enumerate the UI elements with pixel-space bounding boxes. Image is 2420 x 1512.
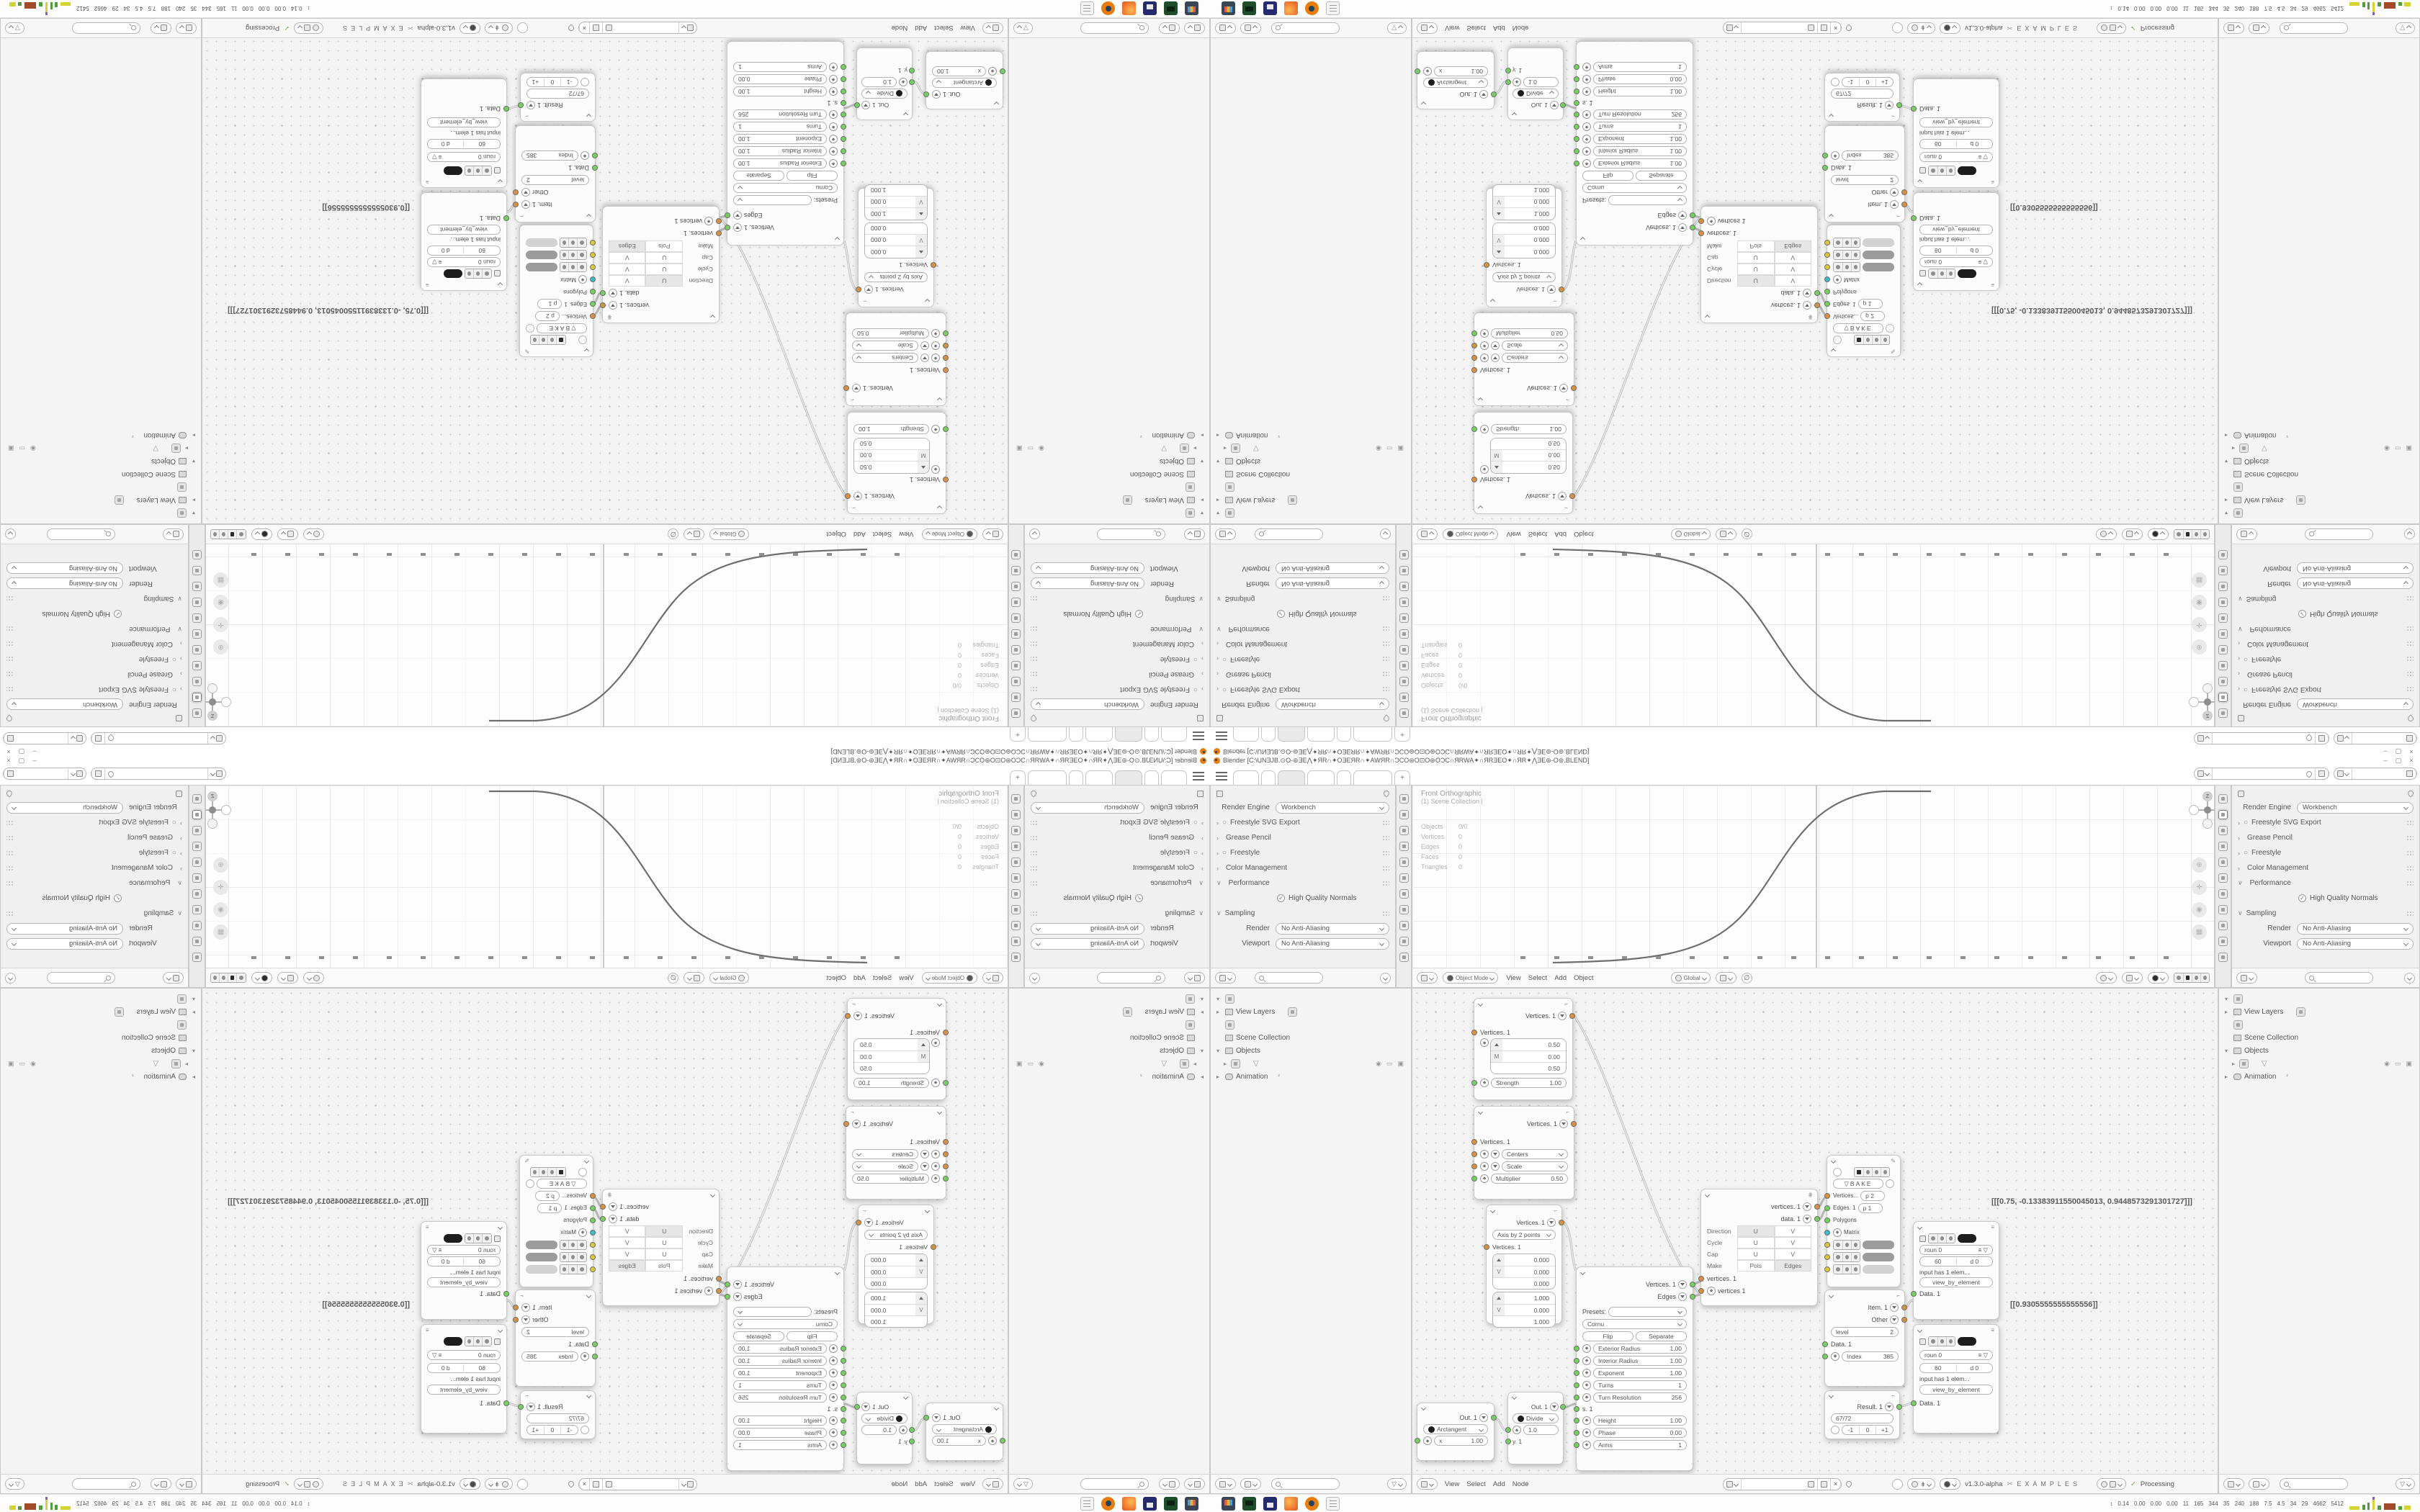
socket-shape-button[interactable] (932, 90, 941, 99)
output-socket[interactable] (513, 1305, 519, 1310)
input-socket[interactable] (716, 1276, 722, 1282)
shield-icon[interactable] (1805, 23, 1818, 34)
tool-icon[interactable] (1399, 953, 1409, 962)
collapse-icon[interactable] (710, 1192, 715, 1197)
render-engine-dropdown[interactable]: Workbench (2297, 802, 2414, 814)
vector-a-input[interactable]: 0.000 V0.000 0.000 (1492, 1254, 1556, 1290)
node-arctangent[interactable]: Out. 1 Arctangent ◆x1.00 (926, 51, 1003, 109)
input-socket[interactable] (590, 1205, 596, 1211)
properties-section-row[interactable]: › ○ Freestyle (1025, 845, 1209, 860)
overlay-toggle-button[interactable] (2122, 972, 2143, 984)
socket-shape-button[interactable] (1803, 1215, 1811, 1223)
overlay-toggle-button[interactable] (277, 528, 298, 540)
tool-icon[interactable] (1399, 629, 1409, 639)
render-aa-dropdown[interactable]: No Anti-Aliasing (2297, 578, 2414, 590)
section-radio-icon[interactable]: ○ (1193, 819, 1198, 827)
grip-icon[interactable] (1382, 911, 1389, 917)
pin-icon[interactable] (104, 733, 117, 744)
level-field[interactable]: level2 (1831, 176, 1899, 186)
workspace-tab[interactable] (1307, 727, 1335, 742)
axis-z-icon[interactable]: Z (207, 791, 218, 801)
input-socket[interactable] (1505, 68, 1511, 73)
editor-type-button[interactable] (1215, 972, 1236, 984)
tab-tool-icon[interactable] (2218, 794, 2228, 804)
vector-a-input[interactable]: 0.000 V0.000 0.000 (864, 1254, 928, 1290)
maximize-button[interactable]: ▢ (2394, 747, 2403, 755)
render-visibility-icon[interactable]: ▣ (1016, 1060, 1023, 1068)
stepper[interactable]: -1 0 +1 (526, 1425, 578, 1435)
section-radio-icon[interactable]: ○ (1222, 655, 1227, 663)
color-swatch[interactable] (444, 166, 462, 175)
geometry-node-editor[interactable]: [[[0.75, -0.13383911550045013, 0.9448573… (1412, 988, 2218, 1494)
section-radio-icon[interactable]: ○ (172, 849, 176, 857)
grip-icon[interactable] (1382, 850, 1389, 856)
outliner-scene-collection-row[interactable]: Scene Collection (2219, 468, 2419, 481)
stepper[interactable]: -1 0 +1 (526, 77, 578, 87)
grip-icon[interactable] (1382, 642, 1389, 647)
increment-button[interactable]: +1 (1876, 78, 1893, 86)
properties-section-row[interactable]: ∨ Performance (1211, 876, 1395, 891)
input-socket[interactable] (1574, 89, 1579, 95)
tool-icon[interactable] (1399, 708, 1409, 718)
render-visibility-icon[interactable]: ▣ (2406, 1060, 2412, 1068)
field-icon[interactable]: ◆ (1480, 426, 1489, 434)
id-filter-button[interactable] (2249, 22, 2269, 34)
option-u[interactable]: U (646, 264, 684, 275)
tab-output-icon[interactable] (2218, 677, 2228, 686)
properties-section-row[interactable]: ∨ Performance (1025, 621, 1209, 636)
scale-dropdown[interactable]: Scale (852, 341, 918, 351)
node-axis-by-2-points[interactable]: ⌐ Vertices. 1 Axis by 2 points Vertices.… (858, 1205, 934, 1324)
grip-icon[interactable] (6, 881, 14, 886)
field-icon[interactable]: ◆ (1480, 330, 1489, 338)
input-socket[interactable] (931, 1244, 936, 1250)
editor-type-button[interactable] (1184, 972, 1205, 984)
checkbox-checked-icon[interactable]: ✓ (1277, 610, 1285, 618)
node-divide[interactable]: Out. 1 Divide ◆1.0 y. 1 (856, 1392, 913, 1464)
pin-icon[interactable] (5, 714, 13, 722)
field-icon[interactable]: ◆ (1582, 1428, 1591, 1437)
menu-icon[interactable] (1216, 772, 1227, 780)
workspace-tab[interactable] (1069, 770, 1083, 785)
collapse-icon[interactable] (925, 1208, 930, 1213)
input-socket[interactable] (1471, 477, 1477, 483)
properties-section-row[interactable]: › Grease Pencil (1, 667, 188, 682)
collapse-icon[interactable] (1917, 1328, 1922, 1333)
properties-section-row[interactable]: ∨ Performance (1, 621, 188, 636)
decrement-button[interactable]: -1 (1842, 78, 1860, 86)
sampling-section-row[interactable]: ∨ Sampling (1, 591, 188, 606)
viewport-menu-item[interactable]: Select (1525, 974, 1550, 982)
grip-icon[interactable] (1382, 596, 1389, 602)
p-field[interactable]: p 2 (1860, 312, 1885, 322)
output-socket[interactable] (513, 202, 519, 208)
input-socket[interactable] (909, 1427, 915, 1433)
option-u[interactable]: U (1737, 252, 1775, 264)
grip-icon[interactable] (6, 596, 14, 602)
tool-icon[interactable] (1012, 613, 1021, 623)
properties-section-row[interactable]: › ○ Freestyle (2232, 652, 2419, 667)
node-item-level[interactable]: ⌐ Item. 1 Other level2 Data. 1 ◆Index385 (515, 1290, 596, 1387)
taskbar-app-firefox-icon[interactable] (1284, 1497, 1298, 1511)
pan-icon[interactable]: ✛ (213, 880, 228, 895)
socket-shape-button[interactable] (1550, 101, 1559, 109)
input-socket[interactable] (1471, 1176, 1477, 1182)
node-editor-menu-item[interactable]: Node (1510, 24, 1532, 32)
field-icon[interactable]: ◆ (829, 1416, 838, 1425)
grip-icon[interactable] (1382, 835, 1389, 841)
id-filter-button[interactable] (2249, 1478, 2269, 1490)
socket-shape-button[interactable] (733, 212, 742, 220)
properties-section-row[interactable]: ∨ Performance (2232, 876, 2419, 891)
input-socket[interactable] (592, 1341, 598, 1347)
workspace-tab[interactable] (1353, 727, 1392, 742)
section-radio-icon[interactable]: ○ (172, 819, 176, 827)
output-socket[interactable] (518, 1404, 524, 1410)
socket-shape-button[interactable] (1890, 1315, 1899, 1324)
centers-dropdown[interactable]: Centers (1502, 1149, 1568, 1159)
option-u[interactable]: U (646, 1237, 684, 1248)
camera-view-icon[interactable]: ◉ (2192, 902, 2207, 917)
workspace-tab[interactable] (1353, 770, 1392, 785)
view-layer-name-field[interactable] (2352, 768, 2403, 779)
field-icon[interactable]: ◆ (829, 160, 838, 168)
fraction-field[interactable]: 67/72 (526, 1413, 589, 1423)
viewport-visibility-icon[interactable]: ▭ (1028, 445, 1034, 453)
outliner-object-row[interactable]: ▸▽ ◉▭▣ (1, 1057, 201, 1070)
outliner-animation-row[interactable]: ▸Animation² (1009, 429, 1209, 442)
input-socket[interactable] (1574, 1418, 1579, 1423)
outliner-object-row[interactable]: ▸▽ ◉▭▣ (2219, 442, 2419, 455)
socket-shape-button[interactable] (1678, 1292, 1687, 1301)
input-socket[interactable] (503, 1291, 509, 1297)
socket-shape-button[interactable] (1885, 102, 1894, 110)
node-viewer-1[interactable]: ≡ roun 0≡▽ 60d 0 input has 1 elem... vie… (421, 192, 507, 291)
visibility-eye-icon[interactable]: ◉ (2384, 1060, 2390, 1068)
gear-icon[interactable] (294, 22, 323, 34)
collapse-icon[interactable] (1580, 1270, 1585, 1275)
display-mode-button[interactable] (176, 22, 197, 34)
socket-shape-button[interactable] (609, 1202, 617, 1211)
vector-b-input[interactable]: 1.000 V0.000 1.000 (1492, 1292, 1556, 1328)
bake-options-icons[interactable] (1854, 335, 1890, 345)
collapse-icon[interactable] (1421, 102, 1426, 107)
collapse-icon[interactable] (1490, 1208, 1495, 1213)
input-socket[interactable] (590, 1218, 596, 1223)
node-vertices-vector[interactable]: ⌐ Vertices. 1 Vertices. 1 ◆ 0.50 M0.00 0… (1474, 998, 1573, 1100)
taskbar-app-firefox-icon[interactable] (1284, 2, 1298, 16)
socket-shape-button[interactable] (920, 354, 929, 363)
mode-dropdown[interactable]: Axis by 2 points (1492, 273, 1556, 283)
record-icon[interactable] (1833, 1168, 1842, 1176)
timer-icon[interactable] (526, 324, 534, 333)
math-operation-dropdown[interactable]: Arctangent (1423, 1424, 1488, 1434)
collapse-icon[interactable] (835, 1270, 840, 1275)
editor-type-button[interactable] (982, 972, 1003, 984)
value-field[interactable]: 1.0 (1523, 1425, 1559, 1435)
increment-button[interactable]: +1 (527, 1426, 544, 1434)
separate-button[interactable]: Separate (1636, 171, 1687, 181)
bake-slot-icons[interactable] (1833, 251, 1860, 261)
outliner-scene-collection-row[interactable]: Scene Collection (1211, 468, 1411, 481)
collapse-icon[interactable] (937, 505, 942, 510)
field-icon[interactable]: ◆ (1833, 276, 1842, 284)
tool-icon[interactable] (1012, 582, 1021, 591)
output-socket[interactable] (1690, 1282, 1695, 1287)
node-tree-name-field[interactable] (1742, 23, 1804, 34)
tab-object-icon[interactable] (192, 889, 202, 899)
tool-icon[interactable] (1012, 905, 1021, 914)
properties-section-row[interactable]: › Color Management (1211, 860, 1395, 876)
node-editor-menu-item[interactable]: View (958, 24, 978, 32)
scene-selector[interactable] (2194, 768, 2329, 780)
mode-dropdown[interactable]: Object Mode (922, 972, 977, 984)
math-operation-dropdown[interactable]: Divide (1512, 1413, 1559, 1423)
node-param-row[interactable]: ◆Height1.00 (1577, 86, 1693, 98)
view-by-element-button[interactable]: view_by_element (1919, 1277, 1993, 1287)
checkbox-checked-icon[interactable]: ✓ (1135, 610, 1143, 618)
viewer-mode-icons[interactable] (1928, 269, 1955, 279)
bake-slot-icons[interactable] (560, 238, 587, 248)
taskbar-app-floppy-icon[interactable] (1143, 1497, 1157, 1511)
index-field[interactable]: Index385 (521, 1351, 578, 1362)
flip-button[interactable]: Flip (786, 1331, 838, 1341)
node-divide[interactable]: Out. 1 Divide ◆1.0 y. 1 (856, 48, 913, 120)
tab-physics-icon[interactable] (2218, 921, 2228, 930)
field-icon[interactable]: ◆ (1480, 1162, 1489, 1171)
node-param-row[interactable]: ◆Arms1 (727, 61, 843, 73)
render-aa-dropdown[interactable]: No Anti-Aliasing (6, 578, 123, 590)
pin-icon[interactable] (1382, 789, 1390, 797)
round-field[interactable]: roun 0≡▽ (1919, 257, 1993, 267)
outliner-world-row[interactable] (1211, 1018, 1411, 1031)
axis-minus-x-icon[interactable] (221, 697, 231, 707)
node-param-row[interactable]: ◆Exponent1.00 (1577, 133, 1693, 145)
input-socket[interactable] (1911, 1291, 1917, 1297)
vector-input[interactable]: 0.50 M0.00 0.50 (853, 438, 930, 474)
search-input[interactable] (72, 22, 140, 34)
socket-shape-button[interactable] (609, 302, 617, 310)
input-socket[interactable] (1824, 1266, 1830, 1272)
input-socket[interactable] (1484, 1244, 1489, 1250)
input-socket[interactable] (1911, 215, 1917, 221)
grip-icon[interactable] (1031, 672, 1038, 678)
tool-icon[interactable] (1399, 794, 1409, 804)
node-param-row[interactable]: ◆Phase0.00 (727, 73, 843, 86)
node-bake[interactable]: ✎ ▽BAKE Vertices...p 2 Edges. 1p 1 Polyg… (1827, 1155, 1901, 1287)
node-param-row[interactable]: ◆Height1.00 (727, 1414, 843, 1426)
field-icon[interactable]: ◆ (1423, 67, 1432, 76)
node-tree-icon[interactable] (1724, 1479, 1742, 1490)
socket-shape-button[interactable] (1479, 90, 1488, 99)
shading-sphere-button[interactable] (303, 528, 324, 540)
option-u[interactable]: U (1737, 275, 1775, 287)
outliner-root-row[interactable]: ▾ (2219, 992, 2419, 1005)
tool-icon[interactable] (1399, 598, 1409, 607)
split-field[interactable]: 60d 0 (1919, 1256, 1993, 1266)
checkbox-checked-icon[interactable]: ✓ (114, 610, 122, 618)
node-item-level[interactable]: ⌐ Item. 1 Other level2 Data. 1 ◆Index385 (515, 125, 596, 222)
node-editor-menu-item[interactable]: View (1442, 24, 1462, 32)
bake-button[interactable]: ▽BAKE (537, 1179, 587, 1189)
grip-icon[interactable] (1031, 850, 1038, 856)
input-socket[interactable] (592, 1354, 598, 1359)
taskbar-app-monitor-icon[interactable] (1222, 1497, 1235, 1511)
outliner-view-layers-row[interactable]: ▸View Layers (1, 494, 201, 507)
tab-output-icon[interactable] (2218, 826, 2228, 835)
split-field[interactable]: 60d 0 (1919, 246, 1993, 256)
workspace-tab[interactable] (1069, 727, 1083, 742)
node-result[interactable]: ⌐ Result. 1 67/72 -1 0 +1 (1824, 73, 1900, 122)
outliner-view-layers-row[interactable]: ▸View Layers (2219, 494, 2419, 507)
tool-icon[interactable] (1399, 873, 1409, 883)
proportional-edit-button[interactable]: ∅ (668, 529, 678, 540)
tab-render-icon[interactable] (2218, 693, 2228, 702)
viewport-aa-dropdown[interactable]: No Anti-Aliasing (2297, 938, 2414, 950)
p-field[interactable]: p 2 (1860, 1191, 1885, 1201)
index-field[interactable]: Index385 (1842, 151, 1899, 161)
node-viewer-2[interactable]: ≡ roun 0≡▽ 60d 0 input has 1 elem... vie… (1913, 78, 1999, 188)
option-edges[interactable]: Edges (1775, 1260, 1812, 1272)
value-field[interactable]: 1.0 (1523, 77, 1559, 87)
output-socket[interactable] (600, 1216, 606, 1222)
viewport-menu-item[interactable]: View (896, 531, 916, 539)
taskbar-app-floppy-icon[interactable] (1263, 2, 1277, 16)
input-socket[interactable] (1824, 1218, 1830, 1223)
socket-shape-button[interactable] (521, 1303, 530, 1312)
sampling-section-row[interactable]: ∨ Sampling (1025, 906, 1209, 921)
checkbox-checked-icon[interactable]: ✓ (2298, 610, 2306, 618)
socket-shape-button[interactable] (861, 1403, 870, 1411)
field-icon[interactable]: ◆ (931, 1162, 940, 1171)
render-visibility-icon[interactable]: ▣ (1397, 445, 1404, 453)
viewer-mode-icons[interactable] (465, 166, 492, 176)
output-socket[interactable] (600, 291, 606, 297)
options-button[interactable] (1029, 973, 1040, 984)
outliner-objects-row[interactable]: ▾Objects (1, 455, 201, 468)
pin-icon[interactable] (1845, 24, 1853, 32)
field-icon[interactable]: ◆ (1707, 217, 1716, 226)
workspace-tab-active[interactable] (1278, 770, 1305, 785)
orientation-dropdown[interactable]: Global (1671, 972, 1711, 984)
proportional-edit-button[interactable]: ∅ (1742, 529, 1752, 540)
properties-section-row[interactable]: › ○ Freestyle SVG Export (1211, 815, 1395, 830)
node-cornu-spiral[interactable]: Vertices. 1 Edges Presets: Cornu FlipSep… (1576, 41, 1693, 246)
tab-modifiers-icon[interactable] (2218, 905, 2228, 914)
node-viewer-1[interactable]: ≡ roun 0≡▽ 60d 0 input has 1 elem... vie… (1913, 1221, 1999, 1320)
viewport-visibility-icon[interactable]: ▭ (19, 1060, 26, 1068)
round-field[interactable]: roun 0≡▽ (1919, 1350, 1993, 1360)
collapse-icon[interactable] (903, 1394, 908, 1399)
output-socket[interactable] (518, 103, 524, 109)
vector-a-input[interactable]: 0.000 V0.000 0.000 (864, 222, 928, 258)
render-visibility-icon[interactable]: ▣ (8, 445, 14, 453)
tool-icon[interactable] (1012, 842, 1021, 851)
id-filter-button[interactable] (1159, 1478, 1180, 1490)
grip-icon[interactable] (6, 642, 14, 647)
properties-section-row[interactable]: › Color Management (1025, 636, 1209, 652)
viewport-menu-item[interactable]: Add (1551, 974, 1569, 982)
workspace-tab-active[interactable] (1115, 727, 1142, 742)
tab-constraints-icon[interactable] (192, 566, 202, 575)
node-tree-name-field[interactable] (1742, 1479, 1804, 1490)
mode-dropdown[interactable]: Axis by 2 points (864, 273, 928, 283)
field-icon[interactable]: ◆ (931, 342, 940, 351)
input-socket[interactable] (1911, 1400, 1917, 1406)
outliner-animation-row[interactable]: ▸Animation² (2219, 429, 2419, 442)
gear-icon[interactable] (2097, 1478, 2126, 1490)
grip-icon[interactable] (1031, 642, 1038, 647)
section-radio-icon[interactable]: ○ (2244, 685, 2248, 693)
x-field[interactable]: x1.00 (932, 1436, 986, 1446)
viewport-menu-item[interactable]: Add (1551, 531, 1569, 539)
tool-icon[interactable] (1012, 629, 1021, 639)
separate-button[interactable]: Separate (733, 171, 784, 181)
color-swatch[interactable] (444, 1337, 462, 1346)
sampling-section-row[interactable]: ∨ Sampling (1211, 906, 1395, 921)
field-icon[interactable]: ◆ (829, 1369, 838, 1377)
tool-icon[interactable] (1012, 810, 1021, 819)
pan-icon[interactable]: ✛ (2192, 880, 2207, 895)
search-input[interactable] (1097, 528, 1165, 540)
xray-toggle-button[interactable] (251, 528, 272, 540)
node-tree-selector[interactable]: × (1723, 1478, 1842, 1490)
outliner-world-row[interactable] (1009, 481, 1209, 494)
grip-icon[interactable] (2406, 850, 2414, 856)
editor-type-button[interactable] (982, 22, 1003, 34)
tab-constraints-icon[interactable] (192, 937, 202, 946)
socket-shape-button[interactable] (1479, 1413, 1488, 1422)
p-field[interactable]: p 1 (537, 300, 562, 310)
xray-toggle-button[interactable] (251, 972, 272, 984)
node-editor-menu-item[interactable]: Node (1510, 1480, 1532, 1488)
field-icon[interactable]: ◆ (988, 67, 997, 76)
node-tree-name-field[interactable] (615, 1479, 678, 1490)
minimize-button[interactable]: – (2381, 747, 2390, 755)
properties-section-row[interactable]: › ○ Freestyle (1211, 845, 1395, 860)
options-button[interactable] (1380, 529, 1391, 540)
xray-toggle-button[interactable] (2148, 972, 2169, 984)
outliner-scene-collection-row[interactable]: Scene Collection (1009, 468, 1209, 481)
node-editor-menu-item[interactable]: View (1442, 1480, 1462, 1488)
input-socket[interactable] (1471, 356, 1477, 361)
grip-icon[interactable] (2406, 835, 2414, 841)
output-socket[interactable] (1814, 1204, 1820, 1210)
socket-shape-button[interactable] (521, 1315, 530, 1324)
section-radio-icon[interactable]: ○ (172, 685, 176, 693)
filter-button[interactable]: ▽ (2396, 22, 2415, 34)
overlay-toggle-button[interactable] (2122, 528, 2143, 540)
input-socket[interactable] (716, 1288, 722, 1294)
menu-icon[interactable] (1193, 772, 1204, 780)
node-param-row[interactable]: ◆Arms1 (727, 1439, 843, 1451)
vector-input[interactable]: 0.50 M0.00 0.50 (1490, 438, 1567, 474)
input-socket[interactable] (1911, 106, 1917, 112)
id-filter-button[interactable] (151, 22, 171, 34)
socket-shape-button[interactable] (852, 384, 861, 393)
field-icon[interactable]: ◆ (1582, 63, 1591, 72)
node-editor-menu-item[interactable]: Node (889, 24, 911, 32)
mode-dropdown[interactable]: Object Mode (922, 528, 977, 540)
tab-tool-icon[interactable] (192, 708, 202, 718)
viewport-aa-dropdown[interactable]: No Anti-Aliasing (1276, 563, 1389, 575)
color-swatch[interactable] (444, 269, 462, 278)
bake-options-icons[interactable] (1854, 1167, 1890, 1177)
math-operation-dropdown[interactable]: Arctangent (932, 78, 997, 88)
display-icon[interactable] (494, 1338, 501, 1345)
socket-shape-button[interactable] (1803, 1202, 1811, 1211)
input-socket[interactable] (1824, 1242, 1830, 1248)
